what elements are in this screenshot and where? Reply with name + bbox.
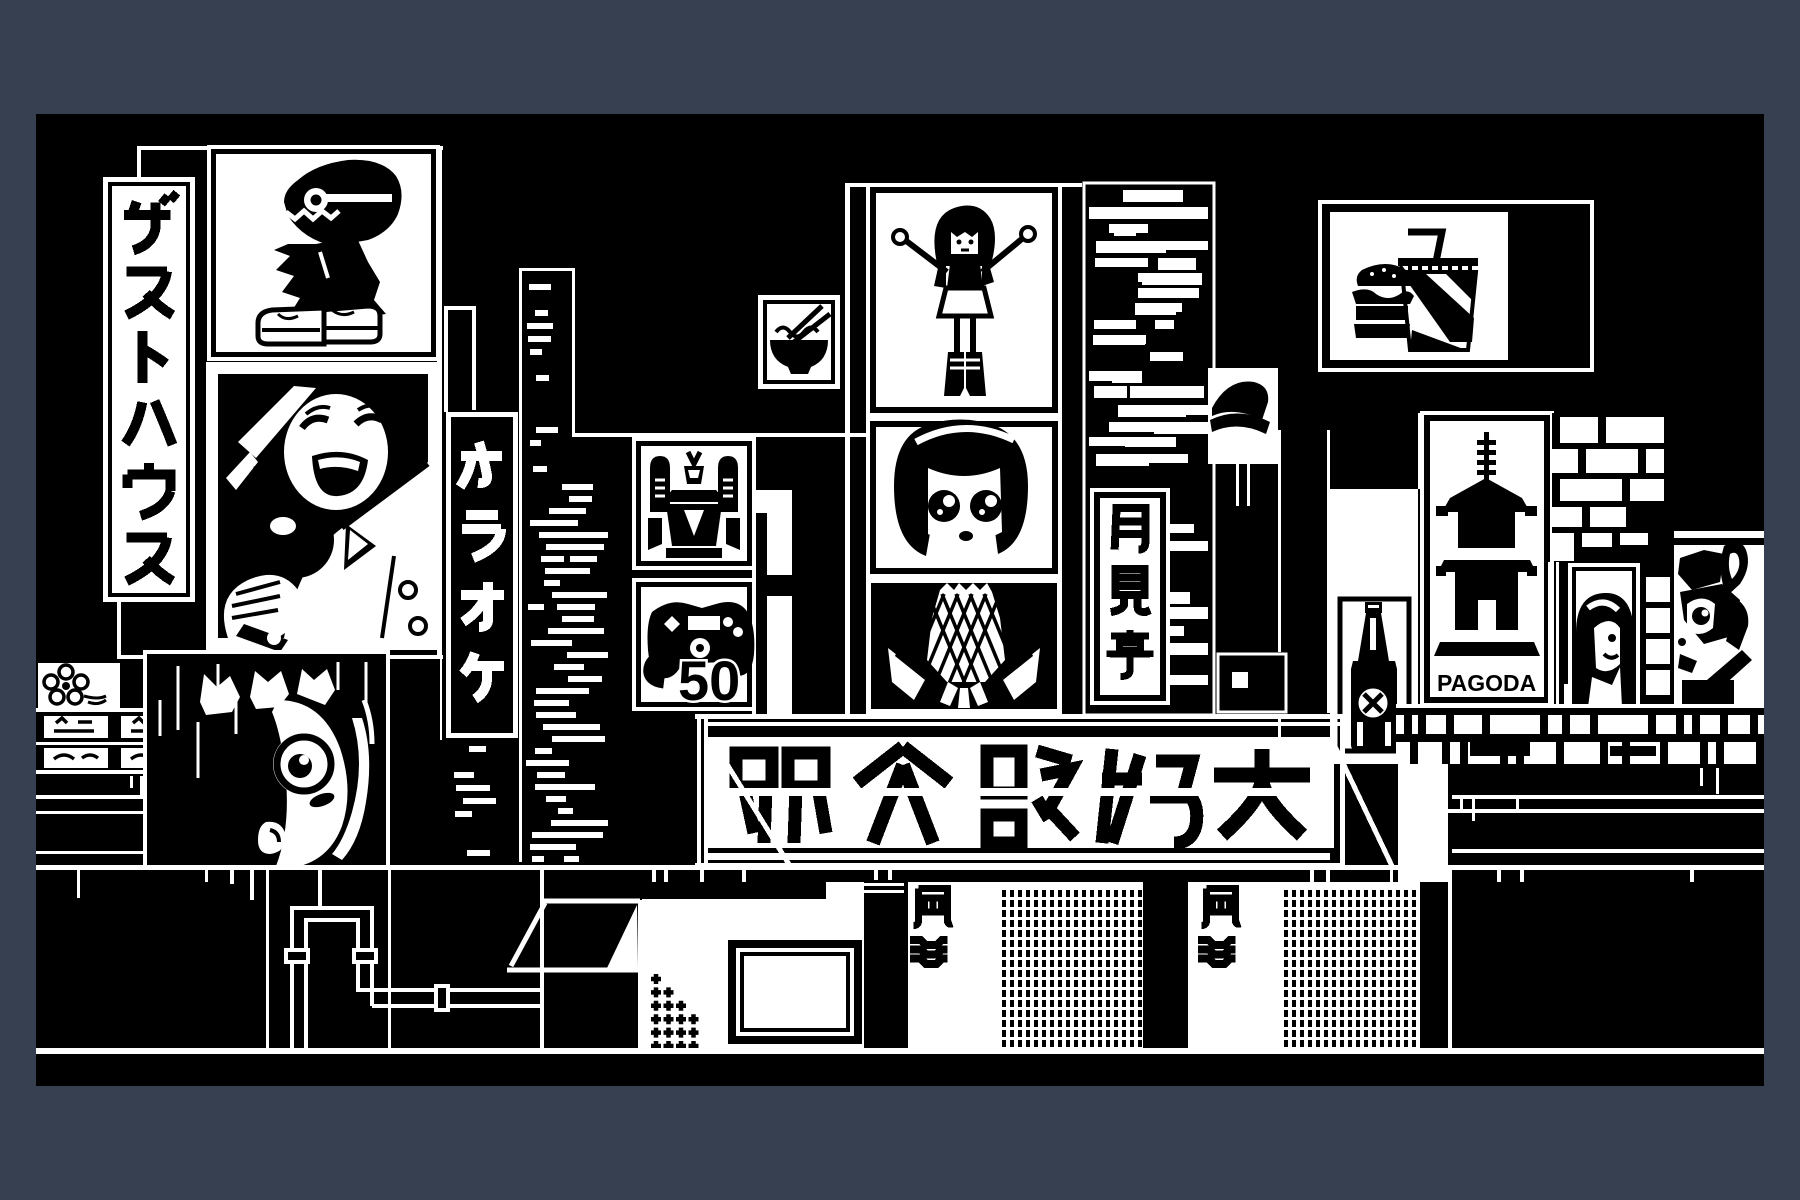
svg-text:PAGODA: PAGODA bbox=[1437, 670, 1536, 696]
svg-text:50: 50 bbox=[678, 649, 740, 712]
